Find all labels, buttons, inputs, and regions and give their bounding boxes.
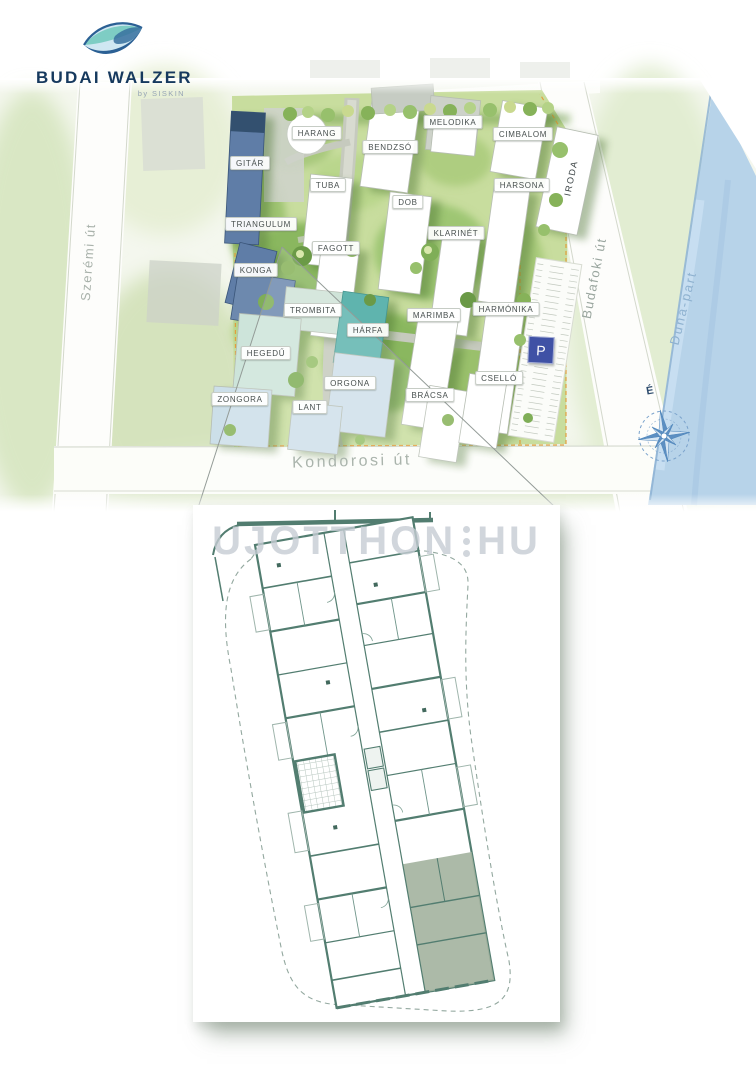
building-label-marimba: MARIMBA <box>407 308 461 322</box>
street-label-kondorosi: Kondorosi út <box>292 451 412 472</box>
building-label-bendzso: BENDZSÓ <box>362 140 418 154</box>
building-label-harang: HARANG <box>292 126 342 140</box>
building-label-melodika: MELODIKA <box>424 115 483 129</box>
building-label-harsona: HARSONA <box>494 178 550 192</box>
building-label-dob: DOB <box>392 195 423 209</box>
building-label-tuba: TUBA <box>310 178 346 192</box>
budai-walzer-logo: BUDAI WALZER by SISKIN <box>36 14 188 98</box>
stairwell <box>295 754 343 812</box>
parking-badge: P <box>527 336 554 364</box>
building-label-csello: CSELLÓ <box>475 371 523 385</box>
building-label-klarinet: KLARINÉT <box>428 226 485 240</box>
building-label-trombita: TROMBITA <box>284 303 342 317</box>
floor-plan-drawing <box>193 505 560 1022</box>
page: BUDAI WALZER by SISKIN HARANG BENDZSÓ ME… <box>0 0 756 1080</box>
building-label-cimbalom: CIMBALOM <box>493 127 553 141</box>
building-label-orgona: ORGONA <box>324 376 376 390</box>
building-label-konga: KONGA <box>234 263 278 277</box>
building-label-gitar: GITÁR <box>230 156 270 170</box>
budai-walzer-logo-icon <box>72 14 152 66</box>
brand-name: BUDAI WALZER <box>36 68 188 88</box>
floor-plan-card: UJOTTHON HU <box>193 505 560 1022</box>
building-label-harfa: HÁRFA <box>347 323 389 337</box>
brand-byline: by SISKIN <box>36 89 188 98</box>
building-label-triangulum: TRIANGULUM <box>225 217 297 231</box>
building-label-lant: LANT <box>292 400 327 414</box>
building-label-zongora: ZONGORA <box>211 392 268 406</box>
building-label-bracsa: BRÁCSA <box>405 388 454 402</box>
building-label-hegedu: HEGEDŰ <box>241 346 291 360</box>
building-label-fagott: FAGOTT <box>312 241 360 255</box>
building-label-harmonika: HARMÓNIKA <box>473 302 540 316</box>
